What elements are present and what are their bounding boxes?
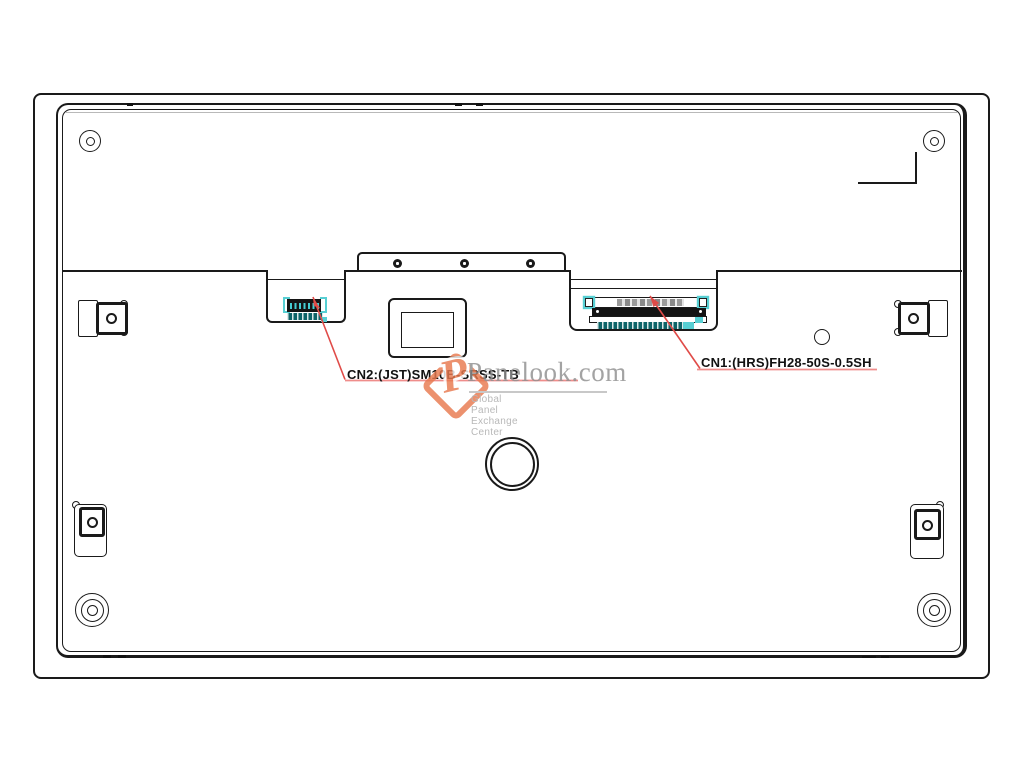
cn2-pocket-inner-line (268, 279, 344, 280)
cn1-pocket-inner-line (571, 279, 716, 280)
label-window-inner (401, 312, 454, 348)
cn1-latch-left (585, 298, 593, 307)
lug-mid-right-hole (908, 313, 919, 324)
center-hole-inner (490, 442, 535, 487)
bracket-screw (393, 259, 402, 268)
bracket-screw (526, 259, 535, 268)
cn1-connector-slot (592, 308, 706, 316)
cn1-pocket-inner-line (571, 288, 716, 289)
panel-rear-drawing: CN2:(JST)SM10B-SRSS-TB CN1:(HRS)FH28-50S… (0, 0, 1024, 768)
edge-tick (862, 656, 876, 658)
lug-mid-left-base (78, 300, 98, 337)
section-edge-line (716, 270, 962, 273)
cn2-connector-pins (287, 313, 323, 321)
datum-mark-horizontal (858, 182, 917, 184)
edge-tick (455, 103, 462, 106)
screw-hole-bottom-left-center (87, 605, 98, 616)
edge-tick (476, 103, 483, 106)
cn1-latch-right (699, 298, 707, 307)
edge-tick (127, 103, 133, 106)
cn2-highlight-bracket-right (320, 297, 327, 313)
cn1-fpc-highlight-end (683, 322, 694, 329)
cn2-connector-tab (321, 317, 327, 322)
lug-low-right-hole (922, 520, 933, 531)
cn1-label: CN1:(HRS)FH28-50S-0.5SH (701, 355, 872, 370)
section-edge-line (62, 270, 268, 273)
lug-low-left-hole (87, 517, 98, 528)
edge-tick (118, 655, 126, 658)
screw-hole-bottom-right-center (929, 605, 940, 616)
watermark-brand: Panelook.com (467, 357, 627, 388)
cn1-fpc-highlight-tab (695, 317, 703, 323)
datum-mark-vertical (915, 152, 917, 184)
top-edge-shadow-line (65, 112, 958, 113)
watermark-tagline: Global Panel Exchange Center (471, 394, 518, 438)
watermark-divider (469, 391, 607, 393)
cn1-fpc-highlight (597, 322, 694, 329)
edge-tick (881, 656, 889, 658)
cn1-connector-marking (617, 299, 684, 306)
screw-hole-top-right-center (930, 137, 939, 146)
lug-mid-right-base (928, 300, 948, 337)
alignment-hole (814, 329, 830, 345)
edge-tick (103, 655, 111, 658)
screw-hole-top-left-center (86, 137, 95, 146)
cn2-connector-marking (290, 303, 319, 309)
bracket-screw (460, 259, 469, 268)
lug-mid-left-hole (106, 313, 117, 324)
